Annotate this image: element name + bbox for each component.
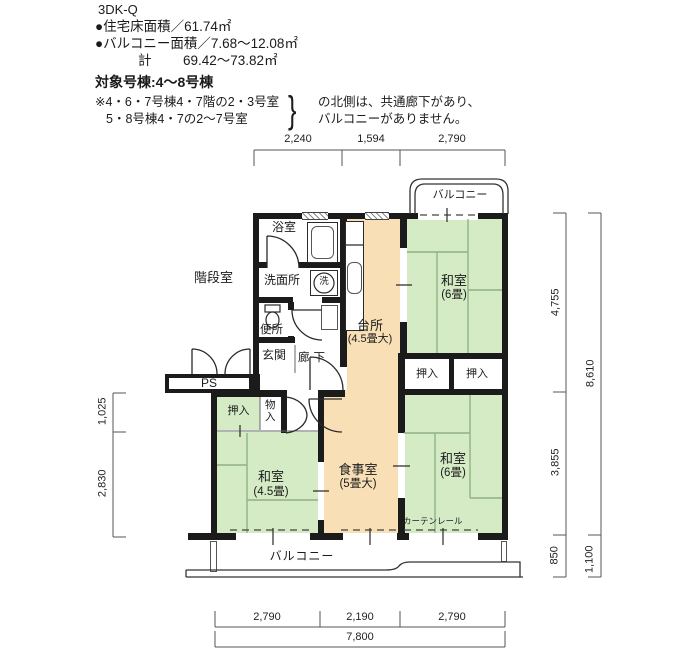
entry-door-left-arc [192,349,217,374]
dim-left-1: 1,025 [97,381,110,441]
dim-right-outer: 1,100 [584,537,597,581]
washroom-label: 洗面所 [264,274,300,288]
dim-right-total: 8,610 [585,343,598,403]
kitchen-size-label: (4.5畳大) [336,333,404,346]
oshiire-sw-label: 押入 [217,405,260,418]
dim-bottom-total: 7,800 [330,631,390,644]
washitsu-sw-label: 和室 [241,470,301,485]
corridor-label: 廊下 [298,352,329,365]
dim-right-inner [553,213,566,577]
washitsu-se-label: 和室 [423,452,483,467]
balcony-top-label: バルコニー [424,189,496,202]
entrance-label: 玄関 [262,349,286,363]
dining-size-label: (5畳大) [328,478,388,491]
toilet-label: 便所 [260,324,283,337]
dim-top-2: 1,594 [341,133,401,146]
toilet-tank [265,305,280,312]
dim-bottom-1: 2,790 [237,611,297,624]
dim-top-1: 2,240 [268,133,328,146]
stairwell-label: 階段室 [194,271,233,286]
monoiri-label: 物入 [265,399,278,423]
balcony-bottom-outer [186,570,523,577]
washer-label: 洗 [316,277,332,288]
dim-top [254,150,505,166]
washitsu-ne-label: 和室 [424,274,484,289]
balcony-bottom-inner [186,562,520,577]
dining-door-arc [309,399,342,432]
bath-label: 浴室 [272,221,296,235]
oshiire-ne1-label: 押入 [405,368,449,381]
kitchen-label: 台所 [340,319,400,334]
washitsu-ne-size-label: (6畳) [424,289,484,302]
washitsu-se-size-label: (6畳) [423,467,483,480]
balcony-bottom-label: バルコニー [266,550,338,564]
dim-bottom-3: 2,790 [422,611,482,624]
washroom-door-arc [292,310,322,340]
monoiri-bifold-arcs [286,397,307,433]
dim-top-3: 2,790 [422,133,482,146]
bath-door-arc [267,236,299,268]
dim-left [113,393,126,537]
floorplan-page: 3DK-Q ●住宅床面積／61.74㎡ ●バルコニー面積／7.68～12.08㎡… [0,0,700,650]
entry-door-right-arc [225,349,250,374]
dining-label: 食事室 [328,463,388,478]
curtain-rail-label: カーテンレール [403,517,463,527]
dim-right-2: 3,855 [550,432,563,492]
dim-bottom-2: 2,190 [330,611,390,624]
dim-right-1: 4,755 [550,272,563,332]
dim-right-3: 850 [549,535,562,575]
oshiire-ne2-label: 押入 [455,368,499,381]
fusuma-ticks [240,285,412,491]
washitsu-sw-size-label: (4.5畳) [238,486,304,499]
dim-left-2: 2,830 [97,453,110,513]
